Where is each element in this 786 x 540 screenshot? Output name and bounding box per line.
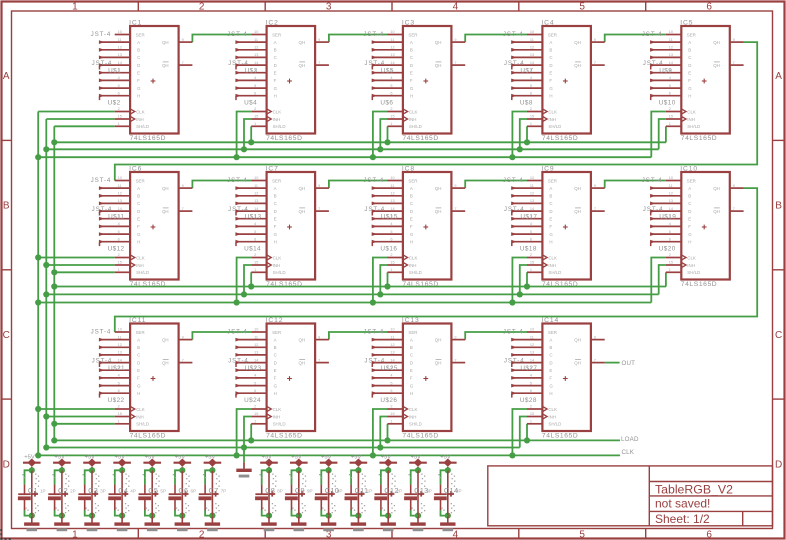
svg-text:QH: QH	[435, 209, 442, 214]
svg-text:E: E	[549, 217, 552, 222]
svg-text:4: 4	[118, 222, 120, 226]
svg-text:INH: INH	[687, 263, 695, 268]
svg-text:SER: SER	[136, 178, 145, 183]
svg-text:E: E	[410, 217, 413, 222]
svg-text:5: 5	[118, 381, 120, 385]
svg-text:+5V: +5V	[291, 455, 302, 461]
svg-text:G: G	[410, 86, 414, 91]
svg-text:F: F	[549, 376, 552, 381]
svg-text:LOAD: LOAD	[621, 436, 639, 443]
svg-text:H: H	[688, 94, 691, 99]
svg-text:QH: QH	[574, 360, 581, 365]
svg-text:C: C	[410, 353, 413, 358]
svg-text:10: 10	[669, 30, 673, 34]
svg-text:SH/LD: SH/LD	[687, 270, 700, 275]
svg-text:G: G	[274, 232, 278, 237]
svg-text:9: 9	[594, 335, 596, 339]
svg-text:SH/LD: SH/LD	[273, 270, 286, 275]
svg-text:U$9: U$9	[659, 68, 672, 75]
svg-text:QH: QH	[162, 63, 169, 68]
svg-text:15: 15	[118, 261, 122, 265]
svg-text:6P: 6P	[191, 488, 197, 493]
svg-text:E: E	[688, 217, 691, 222]
svg-text:CLK: CLK	[687, 255, 696, 260]
svg-text:6: 6	[706, 2, 712, 13]
svg-text:JST-4: JST-4	[92, 60, 113, 67]
svg-text:B: B	[775, 201, 782, 212]
svg-text:QH: QH	[299, 360, 306, 365]
svg-text:10: 10	[254, 30, 258, 34]
svg-text:15: 15	[669, 115, 673, 119]
svg-text:JST-4: JST-4	[363, 329, 384, 336]
svg-text:JST-4: JST-4	[364, 60, 385, 67]
svg-text:SER: SER	[408, 32, 417, 37]
svg-text:JST-4: JST-4	[642, 177, 663, 184]
svg-text:5: 5	[390, 84, 392, 88]
svg-text:H: H	[274, 391, 277, 396]
svg-text:14: 14	[254, 61, 258, 65]
svg-text:9: 9	[733, 38, 735, 42]
svg-text:14: 14	[118, 207, 122, 211]
svg-text:CLK: CLK	[136, 255, 145, 260]
svg-text:74LS165D: 74LS165D	[402, 281, 438, 288]
svg-text:D: D	[410, 63, 413, 68]
svg-text:9: 9	[594, 38, 596, 42]
svg-text:74LS165D: 74LS165D	[542, 433, 578, 440]
svg-text:2: 2	[254, 405, 256, 409]
svg-text:6: 6	[530, 389, 532, 393]
svg-text:G: G	[137, 86, 141, 91]
svg-text:QH: QH	[299, 209, 306, 214]
svg-text:1: 1	[254, 268, 256, 272]
svg-text:10: 10	[118, 176, 122, 180]
svg-text:2: 2	[530, 107, 532, 111]
svg-text:13: 13	[390, 53, 394, 57]
svg-text:10: 10	[390, 328, 394, 332]
svg-text:C: C	[688, 55, 691, 60]
svg-text:QH: QH	[162, 186, 169, 191]
svg-text:+5V: +5V	[24, 455, 35, 461]
svg-text:10: 10	[669, 176, 673, 180]
svg-text:G: G	[274, 383, 278, 388]
svg-text:JST-4: JST-4	[228, 357, 249, 364]
svg-text:IC1: IC1	[129, 20, 142, 27]
svg-text:Sheet: 1/2: Sheet: 1/2	[655, 512, 710, 526]
svg-text:1: 1	[390, 122, 392, 126]
svg-text:CLK: CLK	[409, 255, 418, 260]
svg-text:74LS165D: 74LS165D	[266, 433, 302, 440]
svg-text:D: D	[137, 360, 140, 365]
svg-text:E: E	[549, 71, 552, 76]
svg-text:A: A	[549, 186, 552, 191]
svg-text:JST-4: JST-4	[227, 329, 248, 336]
svg-text:1: 1	[669, 122, 671, 126]
svg-text:12: 12	[390, 192, 394, 196]
svg-text:11: 11	[118, 38, 122, 42]
svg-text:14: 14	[390, 358, 394, 362]
svg-text:7: 7	[594, 358, 596, 362]
svg-text:G: G	[549, 86, 553, 91]
svg-text:JST-4: JST-4	[363, 31, 384, 38]
svg-text:not saved!: not saved!	[655, 497, 710, 511]
svg-text:6: 6	[390, 389, 392, 393]
svg-text:A: A	[137, 186, 140, 191]
svg-text:2: 2	[199, 530, 205, 540]
svg-text:9: 9	[182, 184, 184, 188]
svg-text:U$13: U$13	[245, 214, 262, 221]
svg-text:H: H	[410, 391, 413, 396]
svg-text:2: 2	[669, 107, 671, 111]
svg-text:9: 9	[454, 335, 456, 339]
svg-text:U$22: U$22	[108, 397, 125, 404]
svg-text:U$5: U$5	[381, 68, 394, 75]
svg-text:12: 12	[254, 46, 258, 50]
svg-text:13: 13	[669, 199, 673, 203]
svg-text:D: D	[775, 459, 782, 470]
svg-text:9: 9	[318, 335, 320, 339]
svg-text:A: A	[274, 186, 277, 191]
svg-text:10: 10	[254, 176, 258, 180]
svg-text:7: 7	[594, 207, 596, 211]
svg-text:2: 2	[199, 2, 205, 13]
svg-text:SER: SER	[548, 32, 557, 37]
svg-text:A: A	[274, 337, 277, 342]
svg-text:7: 7	[318, 61, 320, 65]
svg-text:8P: 8P	[277, 488, 283, 493]
svg-text:13: 13	[254, 351, 258, 355]
svg-text:2: 2	[118, 405, 120, 409]
svg-text:12: 12	[390, 343, 394, 347]
svg-text:JST-4: JST-4	[228, 206, 249, 213]
svg-text:4P: 4P	[456, 488, 462, 493]
svg-text:IC11: IC11	[129, 317, 146, 324]
svg-text:H: H	[274, 240, 277, 245]
svg-text:+5V: +5V	[381, 455, 392, 461]
svg-text:CLK: CLK	[687, 109, 696, 114]
svg-text:SH/LD: SH/LD	[136, 270, 149, 275]
svg-text:74LS165D: 74LS165D	[542, 135, 578, 142]
svg-text:F: F	[274, 78, 277, 83]
svg-text:4P: 4P	[130, 488, 136, 493]
svg-text:B: B	[274, 345, 277, 350]
svg-text:C5: C5	[148, 486, 158, 495]
svg-text:H: H	[549, 240, 552, 245]
svg-text:12: 12	[254, 192, 258, 196]
svg-text:6: 6	[254, 389, 256, 393]
svg-text:SH/LD: SH/LD	[136, 124, 149, 129]
svg-text:11: 11	[669, 38, 673, 42]
svg-text:CLK: CLK	[136, 407, 145, 412]
svg-text:JST-4: JST-4	[92, 357, 113, 364]
svg-text:SH/LD: SH/LD	[548, 124, 561, 129]
svg-text:15: 15	[530, 261, 534, 265]
svg-text:CLK: CLK	[273, 407, 282, 412]
svg-text:QH: QH	[435, 360, 442, 365]
svg-text:5: 5	[530, 381, 532, 385]
svg-text:IC8: IC8	[402, 166, 415, 173]
svg-text:F: F	[137, 224, 140, 229]
svg-text:10: 10	[390, 176, 394, 180]
svg-text:QH: QH	[574, 63, 581, 68]
svg-text:QH: QH	[435, 63, 442, 68]
svg-text:1: 1	[390, 420, 392, 424]
svg-text:OUT: OUT	[622, 360, 636, 367]
svg-text:+5V: +5V	[351, 455, 362, 461]
svg-text:4: 4	[530, 76, 532, 80]
svg-text:5: 5	[669, 84, 671, 88]
svg-text:15: 15	[530, 412, 534, 416]
svg-text:4: 4	[118, 76, 120, 80]
svg-text:4: 4	[254, 222, 256, 226]
svg-text:G: G	[688, 232, 692, 237]
svg-text:E: E	[137, 71, 140, 76]
svg-text:C: C	[137, 55, 140, 60]
svg-text:9: 9	[318, 38, 320, 42]
svg-text:B: B	[549, 345, 552, 350]
svg-text:A: A	[410, 40, 413, 45]
svg-text:A: A	[3, 71, 10, 82]
svg-text:7: 7	[594, 61, 596, 65]
svg-text:6: 6	[390, 91, 392, 95]
svg-text:15: 15	[118, 412, 122, 416]
svg-text:CLK: CLK	[273, 109, 282, 114]
svg-text:G: G	[410, 232, 414, 237]
svg-text:F: F	[688, 224, 691, 229]
svg-text:12: 12	[530, 192, 534, 196]
svg-text:C1: C1	[28, 486, 38, 495]
svg-text:INH: INH	[273, 263, 281, 268]
svg-text:B: B	[410, 194, 413, 199]
svg-text:10: 10	[118, 328, 122, 332]
svg-text:C6: C6	[178, 486, 188, 495]
svg-text:13: 13	[254, 53, 258, 57]
svg-text:74LS165D: 74LS165D	[266, 135, 302, 142]
svg-text:B: B	[410, 345, 413, 350]
svg-text:SH/LD: SH/LD	[409, 270, 422, 275]
svg-text:F: F	[274, 376, 277, 381]
svg-text:15: 15	[118, 115, 122, 119]
svg-text:INH: INH	[548, 263, 556, 268]
svg-text:B: B	[137, 345, 140, 350]
svg-text:U$12: U$12	[108, 245, 125, 252]
svg-text:4: 4	[254, 374, 256, 378]
svg-text:U$25: U$25	[381, 365, 398, 372]
svg-text:A: A	[137, 337, 140, 342]
svg-text:F: F	[549, 78, 552, 83]
svg-text:11: 11	[118, 184, 122, 188]
svg-text:10: 10	[530, 176, 534, 180]
svg-text:C: C	[410, 55, 413, 60]
svg-text:JST-4: JST-4	[227, 31, 248, 38]
svg-text:QH: QH	[162, 337, 169, 342]
svg-text:15: 15	[669, 261, 673, 265]
svg-text:JST-4: JST-4	[364, 357, 385, 364]
svg-text:QH: QH	[435, 40, 442, 45]
svg-text:IC5: IC5	[680, 20, 693, 27]
svg-text:CLK: CLK	[548, 407, 557, 412]
svg-text:4: 4	[118, 374, 120, 378]
svg-text:JST-4: JST-4	[364, 206, 385, 213]
svg-text:1P: 1P	[367, 488, 373, 493]
svg-text:7: 7	[454, 207, 456, 211]
svg-text:A: A	[274, 40, 277, 45]
svg-text:7: 7	[182, 207, 184, 211]
svg-text:JST-4: JST-4	[643, 206, 664, 213]
svg-text:+5V: +5V	[84, 455, 95, 461]
svg-text:A: A	[688, 40, 691, 45]
svg-text:3: 3	[326, 2, 332, 13]
svg-text:IC12: IC12	[266, 317, 284, 324]
svg-text:U$7: U$7	[520, 68, 533, 75]
svg-text:B: B	[688, 48, 691, 53]
svg-text:INH: INH	[273, 414, 281, 419]
svg-text:U$24: U$24	[244, 397, 261, 404]
svg-text:QH: QH	[299, 337, 306, 342]
svg-text:C: C	[549, 55, 552, 60]
svg-text:74LS165D: 74LS165D	[266, 281, 302, 288]
svg-text:IC9: IC9	[541, 166, 554, 173]
svg-text:6: 6	[254, 91, 256, 95]
svg-text:5: 5	[254, 381, 256, 385]
svg-text:9: 9	[182, 335, 184, 339]
svg-text:H: H	[410, 240, 413, 245]
svg-text:4: 4	[453, 2, 459, 13]
svg-text:G: G	[549, 232, 553, 237]
svg-text:14: 14	[390, 61, 394, 65]
svg-text:JST-4: JST-4	[643, 60, 664, 67]
svg-text:2: 2	[390, 107, 392, 111]
svg-text:1: 1	[118, 420, 120, 424]
svg-text:12: 12	[530, 46, 534, 50]
svg-text:H: H	[137, 94, 140, 99]
svg-text:2: 2	[530, 405, 532, 409]
svg-text:11: 11	[254, 38, 258, 42]
svg-text:SER: SER	[272, 32, 281, 37]
svg-text:13: 13	[254, 199, 258, 203]
svg-text:D: D	[410, 360, 413, 365]
svg-text:SER: SER	[272, 178, 281, 183]
svg-text:15: 15	[390, 412, 394, 416]
svg-text:14: 14	[118, 358, 122, 362]
svg-text:C: C	[274, 353, 277, 358]
svg-text:B: B	[549, 48, 552, 53]
svg-text:SH/LD: SH/LD	[687, 124, 700, 129]
svg-text:IC6: IC6	[129, 166, 142, 173]
svg-text:12: 12	[669, 192, 673, 196]
svg-text:U$17: U$17	[520, 214, 537, 221]
svg-text:IC10: IC10	[680, 166, 698, 173]
svg-text:5: 5	[390, 381, 392, 385]
svg-text:11: 11	[669, 184, 673, 188]
svg-text:+5V: +5V	[440, 455, 451, 461]
svg-text:D: D	[410, 209, 413, 214]
svg-text:D: D	[549, 360, 552, 365]
svg-text:+5V: +5V	[54, 455, 65, 461]
svg-text:C: C	[3, 330, 10, 341]
svg-text:7: 7	[182, 358, 184, 362]
svg-text:7: 7	[454, 358, 456, 362]
svg-text:C: C	[137, 201, 140, 206]
svg-text:IC2: IC2	[266, 20, 279, 27]
svg-text:1: 1	[118, 122, 120, 126]
svg-text:QH: QH	[299, 186, 306, 191]
svg-text:U$23: U$23	[245, 365, 262, 372]
svg-text:D: D	[549, 63, 552, 68]
svg-text:CLK: CLK	[273, 255, 282, 260]
svg-text:11: 11	[530, 335, 534, 339]
svg-text:QH: QH	[299, 63, 306, 68]
svg-text:C: C	[775, 330, 782, 341]
svg-text:SH/LD: SH/LD	[273, 124, 286, 129]
svg-text:F: F	[274, 224, 277, 229]
svg-text:CLK: CLK	[409, 109, 418, 114]
svg-text:INH: INH	[136, 117, 144, 122]
svg-text:+5V: +5V	[321, 455, 332, 461]
svg-text:TableRGB_V2: TableRGB_V2	[655, 482, 733, 496]
svg-text:C7: C7	[209, 486, 219, 495]
svg-text:G: G	[410, 383, 414, 388]
svg-text:D: D	[274, 360, 277, 365]
svg-text:5: 5	[530, 84, 532, 88]
svg-text:JST-4: JST-4	[363, 177, 384, 184]
svg-text:11: 11	[390, 335, 394, 339]
svg-text:IC3: IC3	[402, 20, 415, 27]
svg-text:12: 12	[669, 46, 673, 50]
svg-text:12: 12	[118, 46, 122, 50]
svg-text:5: 5	[579, 2, 585, 13]
svg-text:JST-4: JST-4	[91, 31, 112, 38]
svg-text:14: 14	[530, 61, 534, 65]
svg-text:C: C	[410, 201, 413, 206]
svg-text:+5V: +5V	[115, 455, 126, 461]
svg-text:F: F	[549, 224, 552, 229]
svg-text:SER: SER	[136, 330, 145, 335]
svg-text:QH: QH	[574, 209, 581, 214]
svg-text:CLK: CLK	[548, 109, 557, 114]
svg-text:A: A	[410, 337, 413, 342]
svg-text:U$3: U$3	[245, 68, 258, 75]
svg-text:G: G	[274, 86, 278, 91]
svg-text:E: E	[274, 368, 277, 373]
svg-text:15: 15	[254, 412, 258, 416]
svg-text:12: 12	[254, 343, 258, 347]
svg-text:11: 11	[118, 335, 122, 339]
svg-text:E: E	[688, 71, 691, 76]
svg-text:CLK: CLK	[136, 109, 145, 114]
svg-text:2P: 2P	[396, 488, 402, 493]
svg-text:E: E	[274, 71, 277, 76]
svg-text:14: 14	[669, 207, 673, 211]
svg-text:74LS165D: 74LS165D	[542, 281, 578, 288]
svg-text:4: 4	[530, 374, 532, 378]
svg-text:QH: QH	[162, 209, 169, 214]
svg-text:CLK: CLK	[622, 449, 635, 456]
svg-text:D: D	[137, 209, 140, 214]
svg-text:13: 13	[118, 351, 122, 355]
svg-text:1: 1	[530, 268, 532, 272]
svg-text:+5V: +5V	[175, 455, 186, 461]
svg-text:D: D	[688, 209, 691, 214]
svg-text:2: 2	[118, 253, 120, 257]
svg-text:C4: C4	[118, 486, 128, 495]
svg-text:1: 1	[72, 530, 78, 540]
svg-text:+5V: +5V	[261, 455, 272, 461]
svg-text:INH: INH	[409, 117, 417, 122]
svg-text:JST-4: JST-4	[503, 177, 524, 184]
svg-text:U$19: U$19	[659, 214, 676, 221]
svg-text:12: 12	[118, 343, 122, 347]
svg-text:C3: C3	[88, 486, 98, 495]
